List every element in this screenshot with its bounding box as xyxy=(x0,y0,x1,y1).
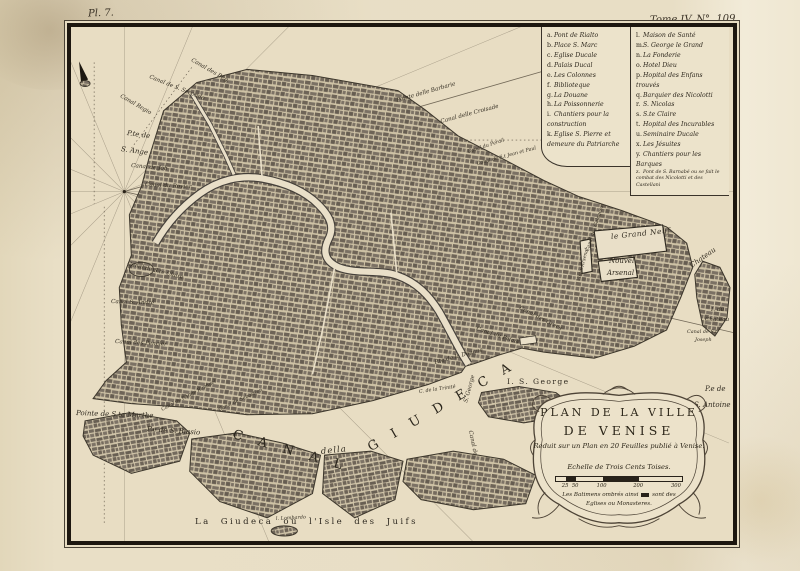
legend-item-letter: o. xyxy=(636,61,643,71)
legend-item-label: Eglise Ducale xyxy=(554,52,597,59)
legend-item-label: S. George le Grand xyxy=(643,42,703,49)
legend-item-label: La Poissonnerie xyxy=(554,101,604,108)
legend-item-label: S. Nicolas xyxy=(643,101,674,108)
legend-item-label: Hopital des Enfans trouvés xyxy=(636,72,703,89)
legend-item: u.Seminaire Ducale xyxy=(636,130,727,140)
legend-item-label: Seminaire Ducale xyxy=(643,131,699,138)
legend-item-letter: y. xyxy=(636,150,643,160)
legend-item-letter: q. xyxy=(636,91,643,101)
legend-item-label: S.te Claire xyxy=(643,111,676,118)
legend-item-label: Eglise S. Pierre et demeure du Patriarch… xyxy=(547,131,619,148)
legend-column-right: l.Maison de Santém.S. George le Grandn.L… xyxy=(630,27,729,196)
legend-item-letter: i. xyxy=(547,110,554,120)
legend-item-letter: k. xyxy=(547,130,554,140)
legend-item-label: Maison de Santé xyxy=(643,32,696,39)
legend-item-label: Biblioteque xyxy=(554,82,590,89)
legend-item-letter: h. xyxy=(547,100,554,110)
legend-item-letter: t. xyxy=(636,120,643,130)
legend-item: e.Les Colonnes xyxy=(547,71,628,81)
legend-item-letter: g. xyxy=(547,91,554,101)
church-shading-swatch-icon xyxy=(641,493,649,497)
legend-item: g.La Douane xyxy=(547,91,628,101)
title-cartouche: PLAN DE LA VILLE DE VENISE Reduit sur un… xyxy=(523,381,715,533)
legend-item-label: Les Colonnes xyxy=(554,72,596,79)
map-frame: Canal des Beg.Canal de S. SecondoCanal R… xyxy=(64,20,740,548)
legend-item-label: La Douane xyxy=(554,92,588,99)
legend-item-letter: r. xyxy=(636,100,643,110)
scale-bar-segment xyxy=(566,477,576,481)
legend-item-label: Chantiers pour la construction xyxy=(547,111,609,128)
legend-item-label: Pont de Rialto xyxy=(554,32,598,39)
legend-item-letter: x. xyxy=(636,140,643,150)
scale-tick: 100 xyxy=(597,483,607,489)
legend-item-letter: f. xyxy=(547,81,554,91)
scale-tick: 300 xyxy=(671,483,681,489)
legend-item: m.S. George le Grand xyxy=(636,41,727,51)
plate-number: Pl. 7. xyxy=(88,8,114,20)
legend-item-letter: b. xyxy=(547,41,554,51)
legend-item-letter: a. xyxy=(547,31,554,41)
legend-item: x.Les Jésuites xyxy=(636,140,727,150)
cartouche-note-line1: Les Batimens ombrés ainsi sont des xyxy=(523,492,715,498)
legend-column-left: a.Pont de Rialtob.Place S. Marcc.Eglise … xyxy=(541,27,630,167)
legend-item-label: La Fonderie xyxy=(643,52,681,59)
legend-item-letter: d. xyxy=(547,61,554,71)
legend-item-letter: l. xyxy=(636,31,643,41)
legend-item-label: Pont de S. Barnabé ou se fait le combat … xyxy=(636,170,719,188)
cartouche-ornament xyxy=(523,381,715,533)
legend-item: q.Barquier des Nicolotti xyxy=(636,91,727,101)
map-title-line1: PLAN DE LA VILLE xyxy=(523,406,715,419)
map-title-line2: DE VENISE xyxy=(523,423,715,438)
legend-item-label: Hotel Dieu xyxy=(643,62,677,69)
map-sheet: Pl. 7. Tome IV. N°. 109. xyxy=(0,0,800,571)
legend-item: d.Palais Ducal xyxy=(547,61,628,71)
legend-item: i.Chantiers pour la construction xyxy=(547,110,628,130)
scale-heading: Echelle de Trois Cents Toises. xyxy=(523,463,715,471)
legend-item: n.La Fonderie xyxy=(636,51,727,61)
legend-item-letter: m. xyxy=(636,41,643,51)
legend-item: l.Maison de Santé xyxy=(636,31,727,41)
legend-item-label: Palais Ducal xyxy=(554,62,592,69)
map-subtitle: Reduit sur un Plan en 20 Feuilles publié… xyxy=(523,442,715,450)
legend-item: p.Hopital des Enfans trouvés xyxy=(636,71,727,91)
legend-item: a.Pont de Rialto xyxy=(547,31,628,41)
legend-item-label: Les Jésuites xyxy=(643,141,681,148)
legend-item-label: Chantiers pour les Barques xyxy=(636,151,701,168)
legend-item: b.Place S. Marc xyxy=(547,41,628,51)
legend-item: r.S. Nicolas xyxy=(636,100,727,110)
legend-item-letter: p. xyxy=(636,71,643,81)
legend-item-label: Hopital des Incurables xyxy=(643,121,714,128)
note-text-1: Les Batimens ombrés ainsi xyxy=(562,492,638,498)
legend-item: k.Eglise S. Pierre et demeure du Patriar… xyxy=(547,130,628,150)
cartouche-note-line2: Eglises ou Monasteres. xyxy=(523,501,715,507)
scale-bar-segment xyxy=(603,477,640,481)
legend-item: f.Biblioteque xyxy=(547,81,628,91)
legend-item: y.Chantiers pour les Barques xyxy=(636,150,727,170)
note-text-2: sont des xyxy=(652,492,676,498)
legend-item: t.Hopital des Incurables xyxy=(636,120,727,130)
legend-item-letter: n. xyxy=(636,51,643,61)
scale-tick: 200 xyxy=(633,483,643,489)
scale-tick: 50 xyxy=(572,483,579,489)
legend-item-letter: e. xyxy=(547,71,554,81)
legend-item: c.Eglise Ducale xyxy=(547,51,628,61)
legend-panel: a.Pont de Rialtob.Place S. Marcc.Eglise … xyxy=(541,27,729,196)
legend-item: z.Pont de S. Barnabé ou se fait le comba… xyxy=(636,170,727,189)
scale-bar xyxy=(555,476,683,482)
legend-item-letter: s. xyxy=(636,110,643,120)
legend-item-letter: c. xyxy=(547,51,554,61)
scale-tick-labels: 2550100200300 xyxy=(555,483,681,491)
scale-tick: 25 xyxy=(562,483,569,489)
legend-item-letter: u. xyxy=(636,130,643,140)
legend-item: h.La Poissonnerie xyxy=(547,100,628,110)
map-area: Canal des Beg.Canal de S. SecondoCanal R… xyxy=(67,23,737,545)
compass-center xyxy=(123,190,126,193)
legend-item-label: Place S. Marc xyxy=(554,42,597,49)
legend-item: s.S.te Claire xyxy=(636,110,727,120)
legend-item: o.Hotel Dieu xyxy=(636,61,727,71)
legend-item-label: Barquier des Nicolotti xyxy=(643,92,713,99)
